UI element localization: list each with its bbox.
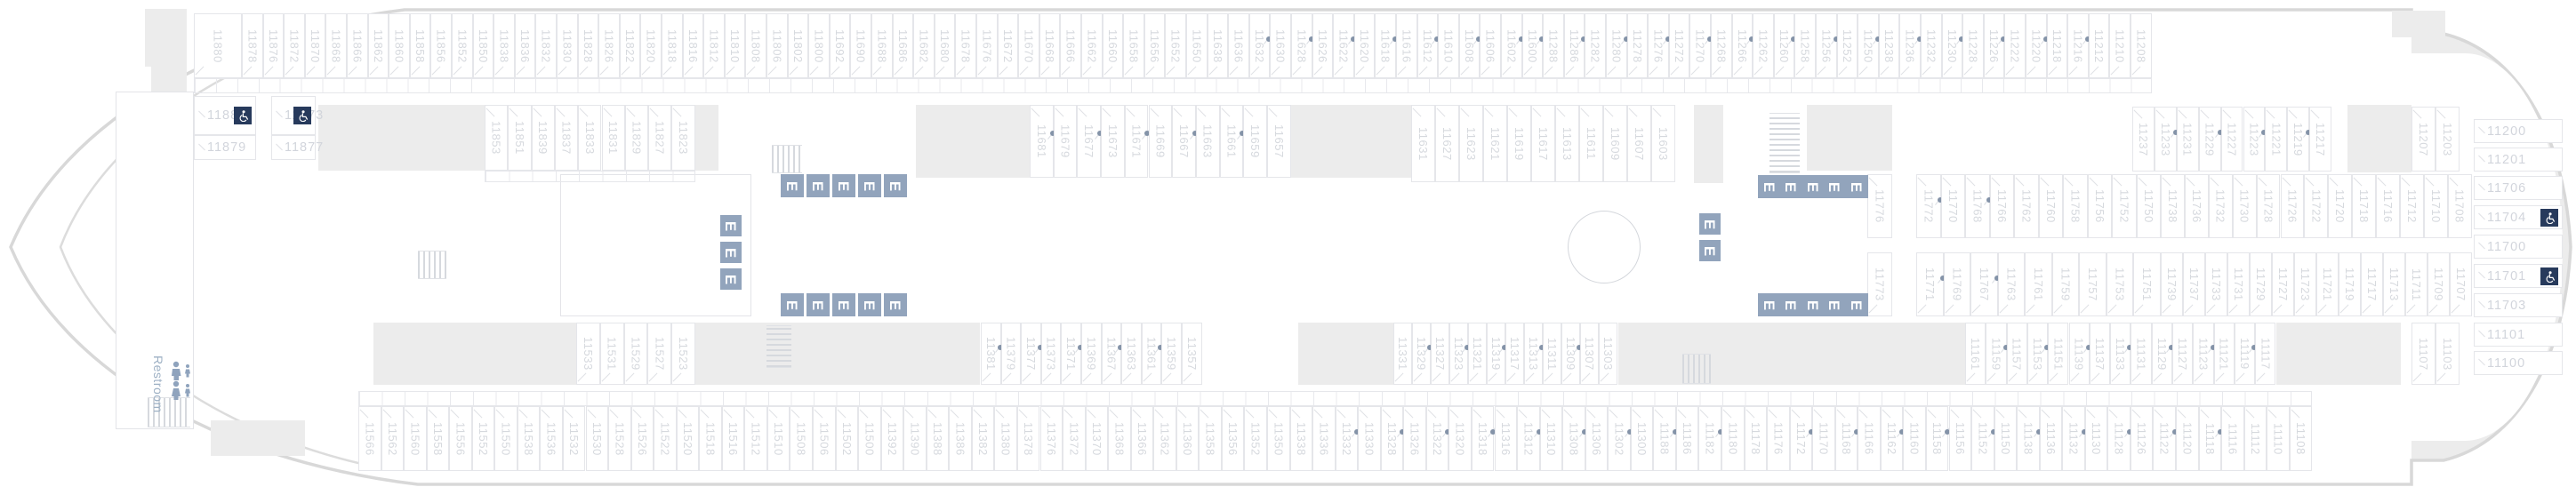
cabin-11860[interactable]: 11860 <box>389 13 410 78</box>
cabin-11756[interactable]: 11756 <box>2088 174 2113 238</box>
cabin-11708[interactable]: 11708 <box>2448 174 2472 238</box>
cabin-11288[interactable]: 11288 <box>1543 13 1564 78</box>
cabin-11133[interactable]: 11133 <box>2110 323 2131 385</box>
cabin-11306[interactable]: 11306 <box>1585 406 1609 471</box>
cabin-11667[interactable]: 11667 <box>1172 105 1196 178</box>
cabin-11800[interactable]: 11800 <box>808 13 830 78</box>
cabin-11757[interactable]: 11757 <box>2079 252 2107 316</box>
cabin-11810[interactable]: 11810 <box>725 13 746 78</box>
cabin-11717[interactable]: 11717 <box>2361 252 2383 316</box>
cabin-11679[interactable]: 11679 <box>1054 105 1078 178</box>
cabin-11376[interactable]: 11376 <box>1040 406 1063 471</box>
cabin-11117[interactable]: 11117 <box>2255 323 2275 385</box>
cabin-11112[interactable]: 11112 <box>2244 406 2267 471</box>
cabin-11686[interactable]: 11686 <box>893 13 914 78</box>
cabin-11526[interactable]: 11526 <box>631 406 654 471</box>
cabin-11562[interactable]: 11562 <box>381 406 405 471</box>
cabin-11531[interactable]: 11531 <box>600 323 624 385</box>
cabin-11252[interactable]: 11252 <box>1837 13 1858 78</box>
cabin-11661[interactable]: 11661 <box>1220 105 1244 178</box>
cabin-11357[interactable]: 11357 <box>1182 323 1202 385</box>
cabin-11626[interactable]: 11626 <box>1312 13 1334 78</box>
cabin-11236[interactable]: 11236 <box>1899 13 1921 78</box>
cabin-11727[interactable]: 11727 <box>2272 252 2294 316</box>
cabin-11366[interactable]: 11366 <box>1131 406 1154 471</box>
cabin-11672[interactable]: 11672 <box>998 13 1019 78</box>
cabin-11610[interactable]: 11610 <box>1438 13 1459 78</box>
cabin-11812[interactable]: 11812 <box>703 13 725 78</box>
cabin-11300[interactable]: 11300 <box>1631 406 1654 471</box>
cabin-11658[interactable]: 11658 <box>1123 13 1144 78</box>
cabin-11816[interactable]: 11816 <box>683 13 704 78</box>
cabin-11256[interactable]: 11256 <box>1816 13 1837 78</box>
cabin-11121[interactable]: 11121 <box>2214 323 2235 385</box>
cabin-11662[interactable]: 11662 <box>1081 13 1103 78</box>
cabin-11829[interactable]: 11829 <box>625 105 648 171</box>
cabin-11151[interactable]: 11151 <box>2048 323 2068 385</box>
cabin-11682[interactable]: 11682 <box>913 13 935 78</box>
cabin-11700[interactable]: 11700 <box>2474 235 2563 259</box>
cabin-11873[interactable]: 11873 <box>271 96 316 135</box>
cabin-11186[interactable]: 11186 <box>1676 406 1699 471</box>
cabin-11877[interactable]: 11877 <box>271 135 316 160</box>
cabin-11881[interactable]: 11881 <box>194 96 256 135</box>
cabin-11839[interactable]: 11839 <box>532 105 555 171</box>
cabin-11566[interactable]: 11566 <box>358 406 381 471</box>
cabin-11709[interactable]: 11709 <box>2428 252 2450 316</box>
cabin-11223[interactable]: 11223 <box>2243 107 2266 172</box>
cabin-11692[interactable]: 11692 <box>830 13 851 78</box>
cabin-11379[interactable]: 11379 <box>1001 323 1022 385</box>
cabin-11332[interactable]: 11332 <box>1336 406 1359 471</box>
cabin-11532[interactable]: 11532 <box>563 406 586 471</box>
cabin-11726[interactable]: 11726 <box>2281 174 2305 238</box>
cabin-11538[interactable]: 11538 <box>518 406 541 471</box>
cabin-11808[interactable]: 11808 <box>745 13 766 78</box>
cabin-11388[interactable]: 11388 <box>927 406 950 471</box>
cabin-11371[interactable]: 11371 <box>1061 323 1081 385</box>
cabin-11128[interactable]: 11128 <box>2107 406 2131 471</box>
cabin-11556[interactable]: 11556 <box>449 406 472 471</box>
cabin-11608[interactable]: 11608 <box>1459 13 1481 78</box>
cabin-11880[interactable]: 11880 <box>194 13 242 78</box>
cabin-11771[interactable]: 11771 <box>1916 252 1944 316</box>
cabin-11750[interactable]: 11750 <box>2137 174 2162 238</box>
cabin-11722[interactable]: 11722 <box>2304 174 2328 238</box>
cabin-11162[interactable]: 11162 <box>1881 406 1904 471</box>
cabin-11752[interactable]: 11752 <box>2112 174 2137 238</box>
cabin-11286[interactable]: 11286 <box>1564 13 1585 78</box>
cabin-11767[interactable]: 11767 <box>1970 252 1998 316</box>
cabin-11136[interactable]: 11136 <box>2040 406 2063 471</box>
cabin-11131[interactable]: 11131 <box>2131 323 2151 385</box>
cabin-11652[interactable]: 11652 <box>1165 13 1186 78</box>
cabin-11368[interactable]: 11368 <box>1108 406 1131 471</box>
cabin-11208[interactable]: 11208 <box>2131 13 2152 78</box>
cabin-11361[interactable]: 11361 <box>1142 323 1162 385</box>
cabin-11716[interactable]: 11716 <box>2376 174 2400 238</box>
cabin-11773[interactable]: 11773 <box>1867 252 1892 316</box>
cabin-11220[interactable]: 11220 <box>2026 13 2047 78</box>
cabin-11530[interactable]: 11530 <box>586 406 609 471</box>
cabin-11516[interactable]: 11516 <box>722 406 745 471</box>
cabin-11160[interactable]: 11160 <box>1903 406 1926 471</box>
cabin-11523[interactable]: 11523 <box>671 323 695 385</box>
cabin-11872[interactable]: 11872 <box>284 13 305 78</box>
cabin-11719[interactable]: 11719 <box>2339 252 2361 316</box>
cabin-11822[interactable]: 11822 <box>620 13 641 78</box>
cabin-11628[interactable]: 11628 <box>1291 13 1312 78</box>
cabin-11879[interactable]: 11879 <box>194 135 256 160</box>
cabin-11386[interactable]: 11386 <box>949 406 972 471</box>
cabin-11508[interactable]: 11508 <box>790 406 813 471</box>
cabin-11166[interactable]: 11166 <box>1858 406 1881 471</box>
cabin-11737[interactable]: 11737 <box>2183 252 2205 316</box>
cabin-11219[interactable]: 11219 <box>2287 107 2309 172</box>
cabin-11518[interactable]: 11518 <box>699 406 722 471</box>
cabin-11238[interactable]: 11238 <box>1879 13 1900 78</box>
cabin-11858[interactable]: 11858 <box>410 13 431 78</box>
cabin-11533[interactable]: 11533 <box>576 323 600 385</box>
cabin-11607[interactable]: 11607 <box>1627 105 1651 182</box>
cabin-11161[interactable]: 11161 <box>1965 323 1986 385</box>
cabin-11670[interactable]: 11670 <box>1018 13 1039 78</box>
cabin-11527[interactable]: 11527 <box>647 323 671 385</box>
cabin-11221[interactable]: 11221 <box>2265 107 2287 172</box>
cabin-11613[interactable]: 11613 <box>1555 105 1579 182</box>
cabin-11703[interactable]: 11703 <box>2474 293 2563 317</box>
cabin-11316[interactable]: 11316 <box>1495 406 1518 471</box>
cabin-11307[interactable]: 11307 <box>1580 323 1599 385</box>
cabin-11390[interactable]: 11390 <box>903 406 927 471</box>
cabin-11876[interactable]: 11876 <box>263 13 285 78</box>
cabin-11713[interactable]: 11713 <box>2383 252 2405 316</box>
cabin-11753[interactable]: 11753 <box>2107 252 2134 316</box>
cabin-11728[interactable]: 11728 <box>2257 174 2281 238</box>
cabin-11820[interactable]: 11820 <box>640 13 662 78</box>
cabin-11520[interactable]: 11520 <box>677 406 700 471</box>
cabin-11763[interactable]: 11763 <box>1998 252 2026 316</box>
cabin-11119[interactable]: 11119 <box>2235 323 2255 385</box>
cabin-11668[interactable]: 11668 <box>1039 13 1061 78</box>
cabin-11618[interactable]: 11618 <box>1375 13 1396 78</box>
cabin-11352[interactable]: 11352 <box>1244 406 1267 471</box>
cabin-11619[interactable]: 11619 <box>1507 105 1531 182</box>
cabin-11329[interactable]: 11329 <box>1412 323 1431 385</box>
cabin-11666[interactable]: 11666 <box>1060 13 1081 78</box>
cabin-11201[interactable]: 11201 <box>2474 148 2563 172</box>
cabin-11302[interactable]: 11302 <box>1608 406 1631 471</box>
cabin-11837[interactable]: 11837 <box>555 105 578 171</box>
cabin-11552[interactable]: 11552 <box>472 406 495 471</box>
cabin-11710[interactable]: 11710 <box>2424 174 2448 238</box>
cabin-11231[interactable]: 11231 <box>2177 107 2199 172</box>
cabin-11328[interactable]: 11328 <box>1381 406 1404 471</box>
cabin-11636[interactable]: 11636 <box>1228 13 1249 78</box>
cabin-11323[interactable]: 11323 <box>1449 323 1468 385</box>
cabin-11237[interactable]: 11237 <box>2132 107 2155 172</box>
cabin-11631[interactable]: 11631 <box>1411 105 1435 182</box>
cabin-11322[interactable]: 11322 <box>1426 406 1449 471</box>
cabin-11276[interactable]: 11276 <box>1648 13 1669 78</box>
cabin-11280[interactable]: 11280 <box>1606 13 1627 78</box>
cabin-11721[interactable]: 11721 <box>2316 252 2339 316</box>
cabin-11159[interactable]: 11159 <box>1986 323 2006 385</box>
cabin-11852[interactable]: 11852 <box>452 13 473 78</box>
cabin-11369[interactable]: 11369 <box>1081 323 1102 385</box>
cabin-11706[interactable]: 11706 <box>2474 176 2563 200</box>
cabin-11326[interactable]: 11326 <box>1403 406 1426 471</box>
cabin-11100[interactable]: 11100 <box>2474 351 2563 375</box>
cabin-11657[interactable]: 11657 <box>1267 105 1291 178</box>
cabin-11230[interactable]: 11230 <box>1942 13 1963 78</box>
cabin-11222[interactable]: 11222 <box>2004 13 2026 78</box>
cabin-11367[interactable]: 11367 <box>1102 323 1122 385</box>
cabin-11152[interactable]: 11152 <box>1971 406 1994 471</box>
cabin-11270[interactable]: 11270 <box>1689 13 1711 78</box>
cabin-11382[interactable]: 11382 <box>972 406 995 471</box>
cabin-11851[interactable]: 11851 <box>508 105 531 171</box>
cabin-11529[interactable]: 11529 <box>624 323 648 385</box>
cabin-11123[interactable]: 11123 <box>2193 323 2213 385</box>
cabin-11139[interactable]: 11139 <box>2069 323 2090 385</box>
cabin-11766[interactable]: 11766 <box>1990 174 2015 238</box>
cabin-11362[interactable]: 11362 <box>1153 406 1176 471</box>
cabin-11616[interactable]: 11616 <box>1396 13 1417 78</box>
cabin-11318[interactable]: 11318 <box>1472 406 1495 471</box>
cabin-11711[interactable]: 11711 <box>2405 252 2428 316</box>
cabin-11878[interactable]: 11878 <box>242 13 263 78</box>
cabin-11560[interactable]: 11560 <box>404 406 427 471</box>
cabin-11688[interactable]: 11688 <box>871 13 893 78</box>
cabin-11832[interactable]: 11832 <box>535 13 557 78</box>
cabin-11153[interactable]: 11153 <box>2027 323 2048 385</box>
cabin-11178[interactable]: 11178 <box>1745 406 1768 471</box>
cabin-11118[interactable]: 11118 <box>2199 406 2222 471</box>
cabin-11250[interactable]: 11250 <box>1858 13 1879 78</box>
cabin-11620[interactable]: 11620 <box>1354 13 1376 78</box>
cabin-11233[interactable]: 11233 <box>2155 107 2177 172</box>
cabin-11838[interactable]: 11838 <box>494 13 515 78</box>
cabin-11776[interactable]: 11776 <box>1867 174 1892 238</box>
cabin-11262[interactable]: 11262 <box>1753 13 1774 78</box>
cabin-11319[interactable]: 11319 <box>1487 323 1505 385</box>
cabin-11309[interactable]: 11309 <box>1561 323 1580 385</box>
cabin-11217[interactable]: 11217 <box>2309 107 2331 172</box>
cabin-11770[interactable]: 11770 <box>1941 174 1966 238</box>
cabin-11268[interactable]: 11268 <box>1711 13 1732 78</box>
cabin-11669[interactable]: 11669 <box>1149 105 1173 178</box>
cabin-11731[interactable]: 11731 <box>2227 252 2250 316</box>
cabin-11828[interactable]: 11828 <box>578 13 599 78</box>
cabin-11676[interactable]: 11676 <box>976 13 998 78</box>
cabin-11736[interactable]: 11736 <box>2185 174 2209 238</box>
cabin-11681[interactable]: 11681 <box>1030 105 1054 178</box>
cabin-11831[interactable]: 11831 <box>602 105 625 171</box>
cabin-11330[interactable]: 11330 <box>1358 406 1381 471</box>
cabin-11729[interactable]: 11729 <box>2250 252 2272 316</box>
cabin-11611[interactable]: 11611 <box>1579 105 1603 182</box>
cabin-11704[interactable]: 11704 <box>2474 205 2563 229</box>
cabin-11216[interactable]: 11216 <box>2067 13 2089 78</box>
cabin-11600[interactable]: 11600 <box>1522 13 1544 78</box>
cabin-11272[interactable]: 11272 <box>1669 13 1690 78</box>
cabin-11107[interactable]: 11107 <box>2411 323 2436 385</box>
cabin-11761[interactable]: 11761 <box>2025 252 2052 316</box>
cabin-11137[interactable]: 11137 <box>2090 323 2110 385</box>
cabin-11739[interactable]: 11739 <box>2161 252 2183 316</box>
cabin-11373[interactable]: 11373 <box>1041 323 1062 385</box>
cabin-11603[interactable]: 11603 <box>1651 105 1675 182</box>
cabin-11260[interactable]: 11260 <box>1774 13 1795 78</box>
cabin-11856[interactable]: 11856 <box>430 13 452 78</box>
cabin-11229[interactable]: 11229 <box>2199 107 2221 172</box>
cabin-11278[interactable]: 11278 <box>1627 13 1649 78</box>
cabin-11833[interactable]: 11833 <box>578 105 601 171</box>
cabin-11317[interactable]: 11317 <box>1505 323 1524 385</box>
cabin-11180[interactable]: 11180 <box>1721 406 1745 471</box>
cabin-11660[interactable]: 11660 <box>1103 13 1124 78</box>
cabin-11558[interactable]: 11558 <box>427 406 450 471</box>
cabin-11320[interactable]: 11320 <box>1448 406 1472 471</box>
cabin-11536[interactable]: 11536 <box>540 406 563 471</box>
cabin-11622[interactable]: 11622 <box>1333 13 1354 78</box>
cabin-11232[interactable]: 11232 <box>1921 13 1942 78</box>
cabin-11336[interactable]: 11336 <box>1312 406 1336 471</box>
cabin-11751[interactable]: 11751 <box>2133 252 2161 316</box>
cabin-11769[interactable]: 11769 <box>1944 252 1971 316</box>
cabin-11826[interactable]: 11826 <box>598 13 620 78</box>
cabin-11227[interactable]: 11227 <box>2221 107 2243 172</box>
cabin-11138[interactable]: 11138 <box>2017 406 2040 471</box>
cabin-11870[interactable]: 11870 <box>305 13 326 78</box>
cabin-11627[interactable]: 11627 <box>1435 105 1459 182</box>
cabin-11212[interactable]: 11212 <box>2089 13 2110 78</box>
cabin-11122[interactable]: 11122 <box>2153 406 2176 471</box>
cabin-11678[interactable]: 11678 <box>955 13 976 78</box>
cabin-11350[interactable]: 11350 <box>1267 406 1290 471</box>
cabin-11720[interactable]: 11720 <box>2328 174 2352 238</box>
cabin-11830[interactable]: 11830 <box>557 13 578 78</box>
cabin-11701[interactable]: 11701 <box>2474 264 2563 288</box>
cabin-11338[interactable]: 11338 <box>1290 406 1313 471</box>
cabin-11188[interactable]: 11188 <box>1653 406 1676 471</box>
cabin-11172[interactable]: 11172 <box>1790 406 1813 471</box>
cabin-11759[interactable]: 11759 <box>2052 252 2080 316</box>
cabin-11609[interactable]: 11609 <box>1603 105 1627 182</box>
cabin-11500[interactable]: 11500 <box>858 406 881 471</box>
cabin-11377[interactable]: 11377 <box>1021 323 1041 385</box>
cabin-11707[interactable]: 11707 <box>2450 252 2472 316</box>
cabin-11101[interactable]: 11101 <box>2474 323 2563 347</box>
cabin-11127[interactable]: 11127 <box>2172 323 2193 385</box>
cabin-11120[interactable]: 11120 <box>2176 406 2199 471</box>
cabin-11732[interactable]: 11732 <box>2209 174 2233 238</box>
cabin-11512[interactable]: 11512 <box>744 406 767 471</box>
cabin-11617[interactable]: 11617 <box>1531 105 1555 182</box>
cabin-11126[interactable]: 11126 <box>2131 406 2154 471</box>
cabin-11762[interactable]: 11762 <box>2014 174 2039 238</box>
cabin-11758[interactable]: 11758 <box>2063 174 2088 238</box>
cabin-11218[interactable]: 11218 <box>2047 13 2068 78</box>
cabin-11370[interactable]: 11370 <box>1086 406 1109 471</box>
cabin-11103[interactable]: 11103 <box>2436 323 2460 385</box>
cabin-11356[interactable]: 11356 <box>1222 406 1245 471</box>
cabin-11228[interactable]: 11228 <box>1962 13 1984 78</box>
cabin-11638[interactable]: 11638 <box>1208 13 1229 78</box>
cabin-11806[interactable]: 11806 <box>766 13 788 78</box>
cabin-11203[interactable]: 11203 <box>2436 107 2460 172</box>
cabin-11210[interactable]: 11210 <box>2109 13 2131 78</box>
cabin-11327[interactable]: 11327 <box>1431 323 1449 385</box>
cabin-11207[interactable]: 11207 <box>2411 107 2436 172</box>
cabin-11378[interactable]: 11378 <box>1017 406 1040 471</box>
cabin-11612[interactable]: 11612 <box>1417 13 1439 78</box>
cabin-11310[interactable]: 11310 <box>1540 406 1563 471</box>
cabin-11659[interactable]: 11659 <box>1243 105 1267 178</box>
cabin-11621[interactable]: 11621 <box>1483 105 1507 182</box>
cabin-11156[interactable]: 11156 <box>1949 406 1972 471</box>
cabin-11502[interactable]: 11502 <box>836 406 859 471</box>
cabin-11827[interactable]: 11827 <box>648 105 671 171</box>
cabin-11129[interactable]: 11129 <box>2152 323 2172 385</box>
cabin-11311[interactable]: 11311 <box>1543 323 1561 385</box>
cabin-11321[interactable]: 11321 <box>1468 323 1487 385</box>
cabin-11258[interactable]: 11258 <box>1794 13 1816 78</box>
cabin-11606[interactable]: 11606 <box>1480 13 1501 78</box>
cabin-11733[interactable]: 11733 <box>2205 252 2227 316</box>
cabin-11110[interactable]: 11110 <box>2267 406 2290 471</box>
cabin-11690[interactable]: 11690 <box>850 13 871 78</box>
cabin-11718[interactable]: 11718 <box>2352 174 2376 238</box>
cabin-11226[interactable]: 11226 <box>1984 13 2005 78</box>
cabin-11182[interactable]: 11182 <box>1698 406 1721 471</box>
cabin-11602[interactable]: 11602 <box>1501 13 1522 78</box>
cabin-11176[interactable]: 11176 <box>1767 406 1790 471</box>
cabin-11266[interactable]: 11266 <box>1732 13 1753 78</box>
cabin-11768[interactable]: 11768 <box>1965 174 1990 238</box>
cabin-11510[interactable]: 11510 <box>767 406 790 471</box>
cabin-11168[interactable]: 11168 <box>1835 406 1858 471</box>
cabin-11677[interactable]: 11677 <box>1077 105 1101 178</box>
cabin-11802[interactable]: 11802 <box>788 13 809 78</box>
cabin-11522[interactable]: 11522 <box>654 406 677 471</box>
cabin-11506[interactable]: 11506 <box>813 406 836 471</box>
cabin-11868[interactable]: 11868 <box>325 13 347 78</box>
cabin-11823[interactable]: 11823 <box>671 105 694 171</box>
cabin-11656[interactable]: 11656 <box>1144 13 1166 78</box>
cabin-11158[interactable]: 11158 <box>1926 406 1949 471</box>
cabin-11308[interactable]: 11308 <box>1562 406 1585 471</box>
cabin-11712[interactable]: 11712 <box>2400 174 2424 238</box>
cabin-11381[interactable]: 11381 <box>981 323 1001 385</box>
cabin-11850[interactable]: 11850 <box>473 13 494 78</box>
cabin-11380[interactable]: 11380 <box>994 406 1017 471</box>
cabin-11372[interactable]: 11372 <box>1063 406 1086 471</box>
cabin-11150[interactable]: 11150 <box>1994 406 2018 471</box>
cabin-11630[interactable]: 11630 <box>1270 13 1291 78</box>
cabin-11772[interactable]: 11772 <box>1916 174 1941 238</box>
cabin-11157[interactable]: 11157 <box>2007 323 2027 385</box>
cabin-11303[interactable]: 11303 <box>1599 323 1617 385</box>
cabin-11550[interactable]: 11550 <box>494 406 518 471</box>
cabin-11650[interactable]: 11650 <box>1186 13 1208 78</box>
cabin-11862[interactable]: 11862 <box>368 13 389 78</box>
cabin-11363[interactable]: 11363 <box>1121 323 1142 385</box>
cabin-11116[interactable]: 11116 <box>2221 406 2244 471</box>
cabin-11760[interactable]: 11760 <box>2039 174 2064 238</box>
cabin-11680[interactable]: 11680 <box>935 13 956 78</box>
